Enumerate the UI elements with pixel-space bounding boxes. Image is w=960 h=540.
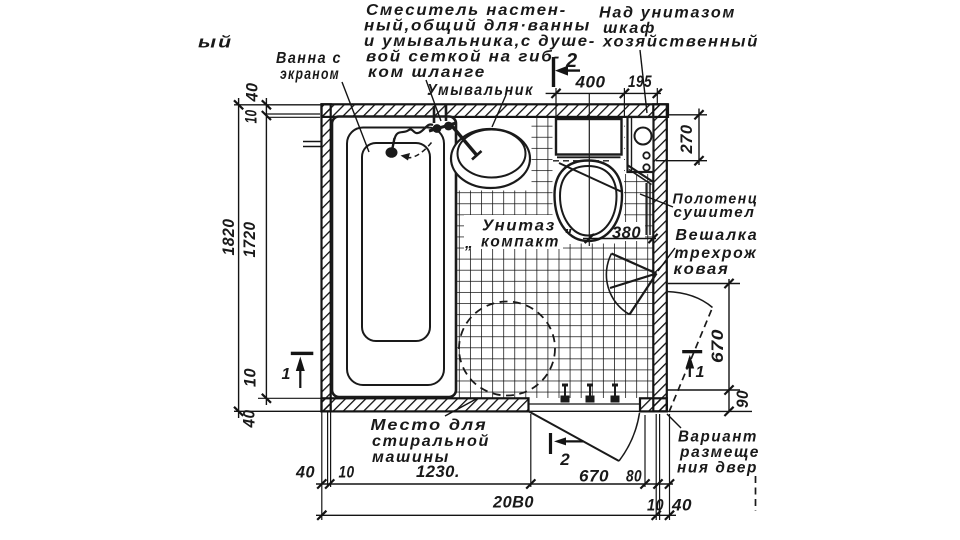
svg-text:Вариант: Вариант <box>678 429 758 446</box>
svg-text:400: 400 <box>574 73 605 92</box>
svg-text:ком шланге: ком шланге <box>368 64 486 81</box>
svg-text:2: 2 <box>565 50 577 72</box>
svg-text:670: 670 <box>708 329 727 363</box>
svg-text:размеще: размеще <box>679 444 760 461</box>
svg-text:стиральной: стиральной <box>372 433 490 450</box>
svg-text:вой сеткой на гиб-: вой сеткой на гиб- <box>366 49 561 66</box>
svg-text:10: 10 <box>339 463 355 482</box>
svg-text:20B0: 20B0 <box>492 493 534 512</box>
svg-text:ный,общий для·ванны: ный,общий для·ванны <box>364 18 591 35</box>
svg-text:": " <box>564 227 573 244</box>
svg-text:1720: 1720 <box>240 221 259 257</box>
svg-text:10: 10 <box>240 368 259 387</box>
svg-text:сушител: сушител <box>674 205 756 221</box>
svg-text:270: 270 <box>677 124 696 154</box>
svg-text:Место для: Место для <box>371 417 488 434</box>
svg-text:и умывальника,с душе-: и умывальника,с душе- <box>364 33 596 50</box>
svg-text:2: 2 <box>559 450 570 469</box>
svg-text:экраном: экраном <box>280 66 340 83</box>
svg-text:компакт: компакт <box>481 234 560 251</box>
svg-text:1820: 1820 <box>219 218 238 255</box>
svg-text:ковая: ковая <box>674 261 730 278</box>
svg-text:90: 90 <box>733 390 752 408</box>
svg-text:1: 1 <box>282 366 291 383</box>
svg-text:195: 195 <box>628 72 652 91</box>
svg-text:40: 40 <box>239 409 258 428</box>
svg-text:40: 40 <box>671 496 692 515</box>
svg-text:Ванна с: Ванна с <box>276 50 342 67</box>
svg-text:ый: ый <box>198 33 233 52</box>
svg-text:Вешалка: Вешалка <box>675 227 758 244</box>
svg-text:80: 80 <box>626 467 642 486</box>
svg-text:Смеситель настен-: Смеситель настен- <box>366 2 567 19</box>
svg-text:машины: машины <box>372 449 450 466</box>
svg-text:10: 10 <box>241 109 260 123</box>
svg-text:ния двер: ния двер <box>677 460 758 477</box>
svg-text:хозяйственный: хозяйственный <box>602 34 759 51</box>
svg-text:трехрож: трехрож <box>674 245 757 262</box>
svg-text:Умывальник: Умывальник <box>427 82 534 99</box>
svg-text:40: 40 <box>295 463 315 482</box>
svg-text:10: 10 <box>647 496 664 515</box>
svg-text:380: 380 <box>612 223 641 242</box>
svg-text:40: 40 <box>242 82 261 102</box>
svg-text:Унитаз: Унитаз <box>482 218 556 235</box>
svg-text:Над унитазом: Над унитазом <box>599 5 736 22</box>
svg-text:670: 670 <box>579 467 609 486</box>
svg-text:„: „ <box>464 235 474 252</box>
svg-text:1: 1 <box>696 364 705 381</box>
